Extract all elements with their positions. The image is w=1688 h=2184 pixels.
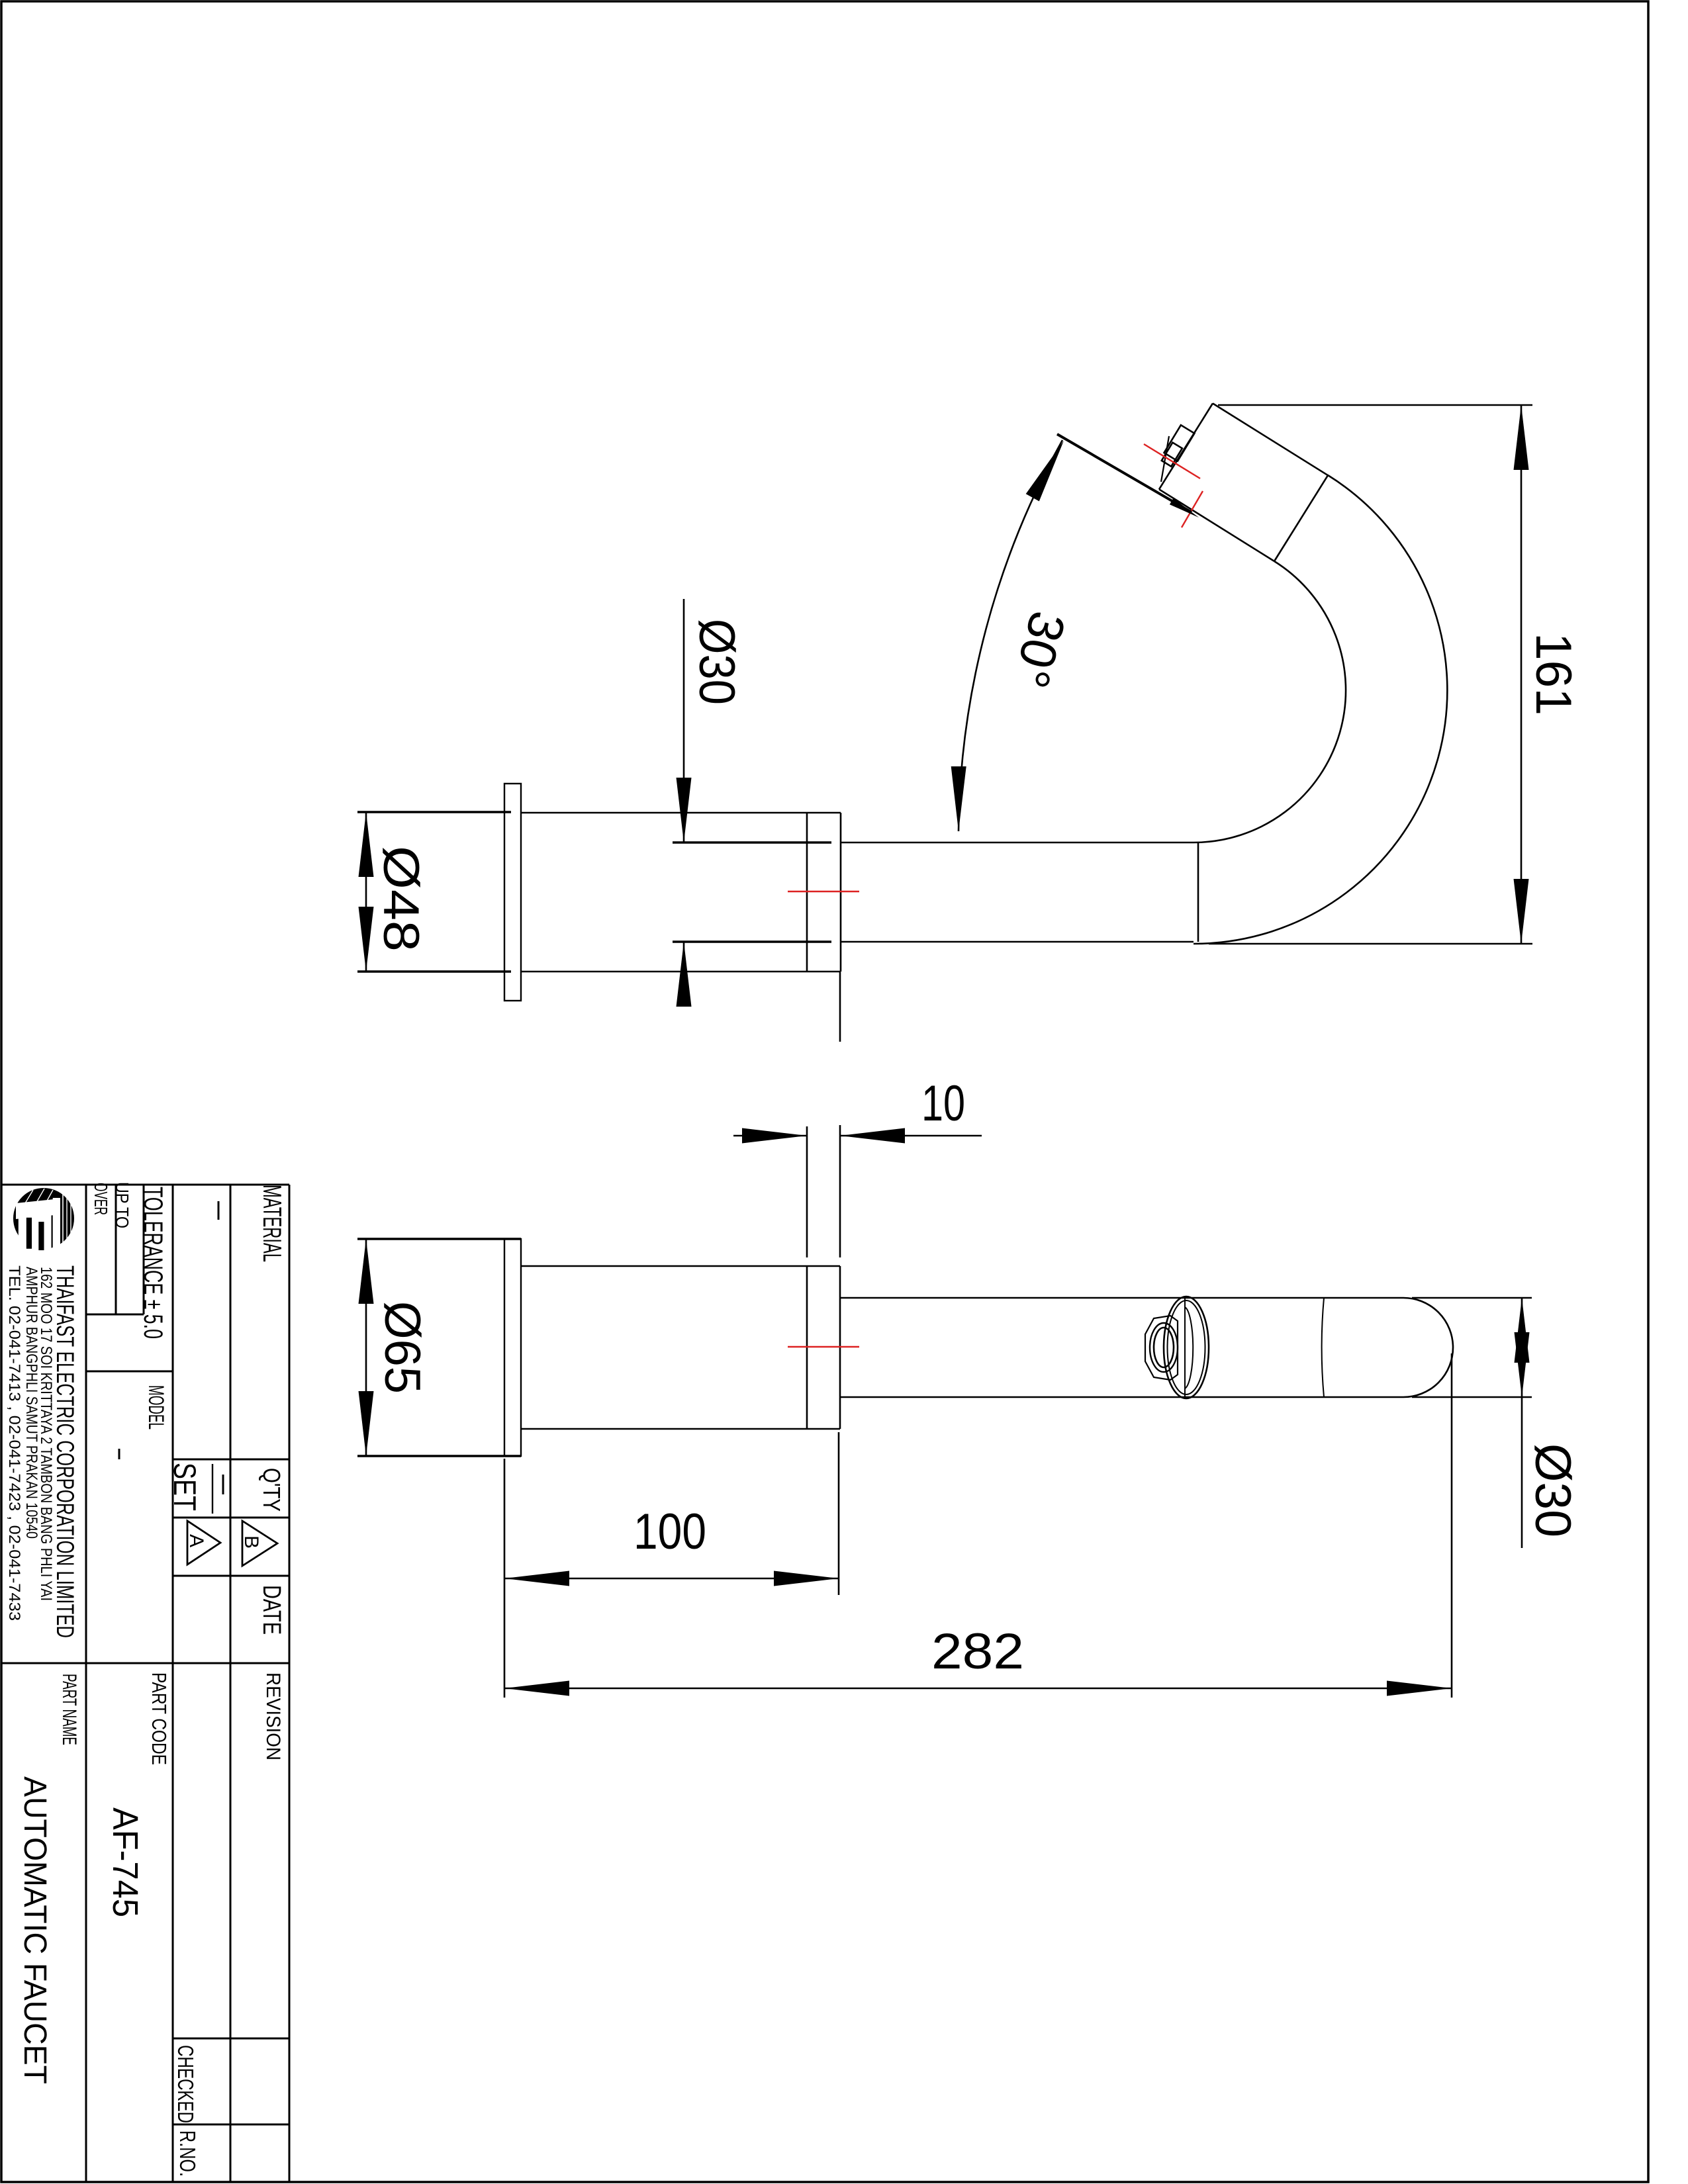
svg-text:PART NAME: PART NAME	[58, 1674, 80, 1745]
svg-text:161: 161	[1525, 633, 1581, 715]
svg-text:MODEL: MODEL	[144, 1385, 168, 1430]
svg-text:DATE: DATE	[258, 1585, 285, 1635]
svg-text:Ø30: Ø30	[1524, 1443, 1581, 1537]
svg-text:Ø30: Ø30	[688, 619, 745, 705]
svg-text:282: 282	[931, 1623, 1024, 1680]
svg-text:MATERIAL: MATERIAL	[258, 1185, 286, 1262]
svg-text:TEL. 02-041-7413 , 02-041-7423: TEL. 02-041-7413 , 02-041-7423 , 02-041-…	[5, 1265, 23, 1621]
svg-text:R.NO.: R.NO.	[175, 2130, 200, 2177]
svg-text:SET: SET	[167, 1463, 203, 1511]
svg-text:Q'TY: Q'TY	[258, 1468, 285, 1512]
svg-text:REVISION: REVISION	[262, 1672, 284, 1760]
svg-text:CHECKED: CHECKED	[173, 2045, 198, 2123]
svg-text:B: B	[240, 1535, 262, 1549]
svg-text:AF-745: AF-745	[105, 1807, 145, 1917]
svg-text:Ø48: Ø48	[373, 846, 429, 952]
svg-text:AUTOMATIC FAUCET: AUTOMATIC FAUCET	[17, 1776, 52, 2084]
svg-text:TOLERANCE ± 5.0: TOLERANCE ± 5.0	[138, 1187, 167, 1339]
svg-text:PART CODE: PART CODE	[148, 1672, 171, 1765]
svg-text:THAIFAST ELECTRIC CORPORATION: THAIFAST ELECTRIC CORPORATION LIMITED	[52, 1265, 79, 1638]
svg-text:Ø65: Ø65	[374, 1301, 430, 1394]
svg-text:10: 10	[921, 1075, 965, 1132]
svg-text:AMPHUR BANGPHLI SAMUT PRAKAN 1: AMPHUR BANGPHLI SAMUT PRAKAN 10540	[23, 1267, 40, 1539]
svg-text:OVER: OVER	[91, 1183, 111, 1215]
svg-text:100: 100	[633, 1504, 706, 1560]
svg-text:A: A	[185, 1534, 207, 1547]
svg-text:UP TO: UP TO	[112, 1182, 132, 1228]
